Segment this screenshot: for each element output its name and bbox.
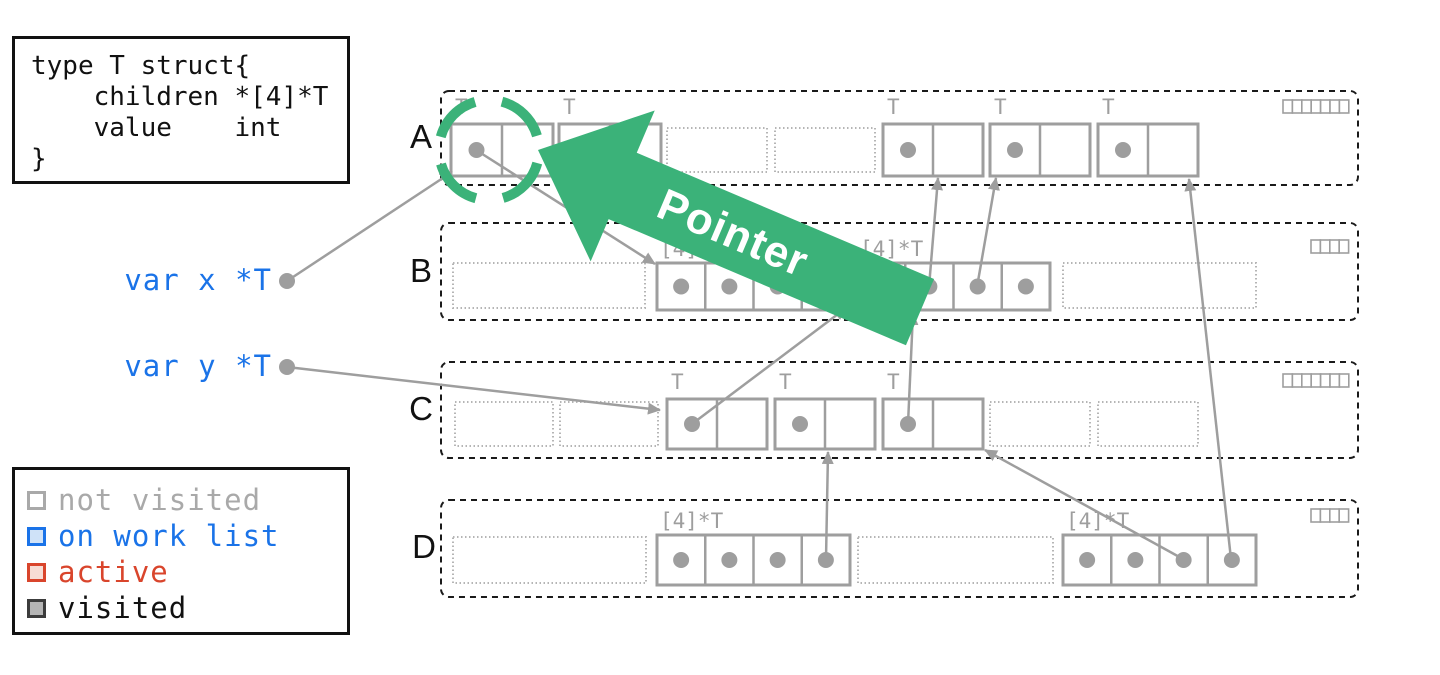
span-size-indicator-icon (1321, 100, 1330, 113)
var-label-x: var x *T (124, 263, 272, 297)
span-size-indicator-icon (1311, 240, 1320, 253)
span-D-label: D (412, 528, 436, 565)
pointer-slot-dot (1176, 552, 1192, 568)
free-slot (667, 128, 767, 172)
span-size-indicator-icon (1330, 509, 1339, 522)
type-T-label: T (671, 370, 684, 394)
span-size-indicator-icon (1302, 100, 1311, 113)
heap-span-row-D: D[4]*T[4]*T (412, 500, 1358, 597)
span-size-indicator-icon (1320, 240, 1329, 253)
free-slot (990, 402, 1090, 446)
type-T-label: T (887, 370, 900, 394)
pointer-slot-dot (1018, 279, 1034, 295)
pointer-slot-dot (1224, 552, 1240, 568)
pointer-slot-dot (469, 142, 485, 158)
pointer-slot-dot (1127, 552, 1143, 568)
type-T-label: T (994, 95, 1007, 119)
slide-canvas: type T struct{ children *[4]*T value int… (0, 0, 1440, 675)
pointer-slot-dot (673, 552, 689, 568)
span-size-indicator-icon (1330, 240, 1339, 253)
free-slot (453, 263, 645, 308)
span-size-indicator-icon (1302, 374, 1311, 387)
span-size-indicator-icon (1311, 509, 1320, 522)
pointer-slot-dot (970, 279, 986, 295)
span-size-indicator-icon (1339, 374, 1348, 387)
pointer-slot-dot (673, 279, 689, 295)
pointer-slot-dot (684, 416, 700, 432)
pointer-slot-dot (900, 416, 916, 432)
free-slot (1063, 263, 1256, 308)
pointer-slot-dot (792, 416, 808, 432)
pointer-slot-dot (1115, 142, 1131, 158)
span-size-indicator-icon (1321, 374, 1330, 387)
span-size-indicator-icon (1320, 509, 1329, 522)
span-size-indicator-icon (1339, 509, 1348, 522)
pointer-slot-dot (721, 279, 737, 295)
var-label-y: var y *T (124, 349, 272, 383)
span-size-indicator-icon (1339, 100, 1348, 113)
span-size-indicator-icon (1339, 240, 1348, 253)
pointer-callout: Pointer (506, 75, 952, 388)
span-size-indicator-icon (1311, 374, 1320, 387)
pointer-slot-dot (900, 142, 916, 158)
type-T-label: T (1102, 95, 1115, 119)
pointer-slot-dot (279, 273, 295, 289)
free-slot (775, 128, 875, 172)
free-slot (453, 537, 646, 583)
pointer-slot-dot (818, 552, 834, 568)
pointer-edge (1189, 179, 1231, 559)
pointer-slot-dot (1007, 142, 1023, 158)
free-slot (858, 537, 1053, 583)
type-T-label: T (563, 95, 576, 119)
span-C-label: C (409, 390, 433, 427)
span-A-label: A (410, 118, 432, 155)
pointer-slot-dot (770, 552, 786, 568)
span-size-indicator-icon (1292, 374, 1301, 387)
span-size-indicator-icon (1283, 374, 1292, 387)
span-size-indicator-icon (1330, 100, 1339, 113)
span-size-indicator-icon (1311, 100, 1320, 113)
free-slot (1098, 402, 1198, 446)
pointer-slot-dot (279, 359, 295, 375)
pointer-slot-dot (721, 552, 737, 568)
type-T-label: T (887, 95, 900, 119)
free-slot (455, 402, 553, 446)
span-size-indicator-icon (1283, 100, 1292, 113)
type-array-label: [4]*T (660, 509, 724, 533)
pointer-slot-dot (1079, 552, 1095, 568)
span-B-label: B (410, 252, 432, 289)
type-T-label: T (779, 370, 792, 394)
span-size-indicator-icon (1330, 374, 1339, 387)
span-size-indicator-icon (1292, 100, 1301, 113)
heap-diagram-svg: ATTTTTB[4]*T[4]*TCTTTD[4]*T[4]*Tvar x *T… (0, 0, 1440, 675)
